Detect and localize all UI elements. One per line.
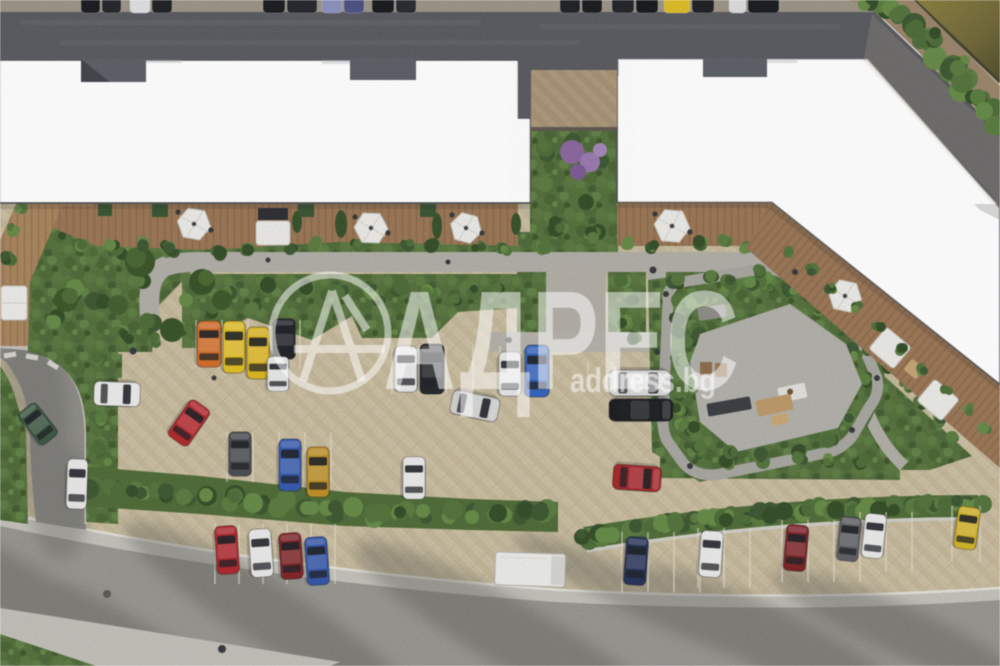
svg-text:address.bg: address.bg (570, 362, 716, 400)
